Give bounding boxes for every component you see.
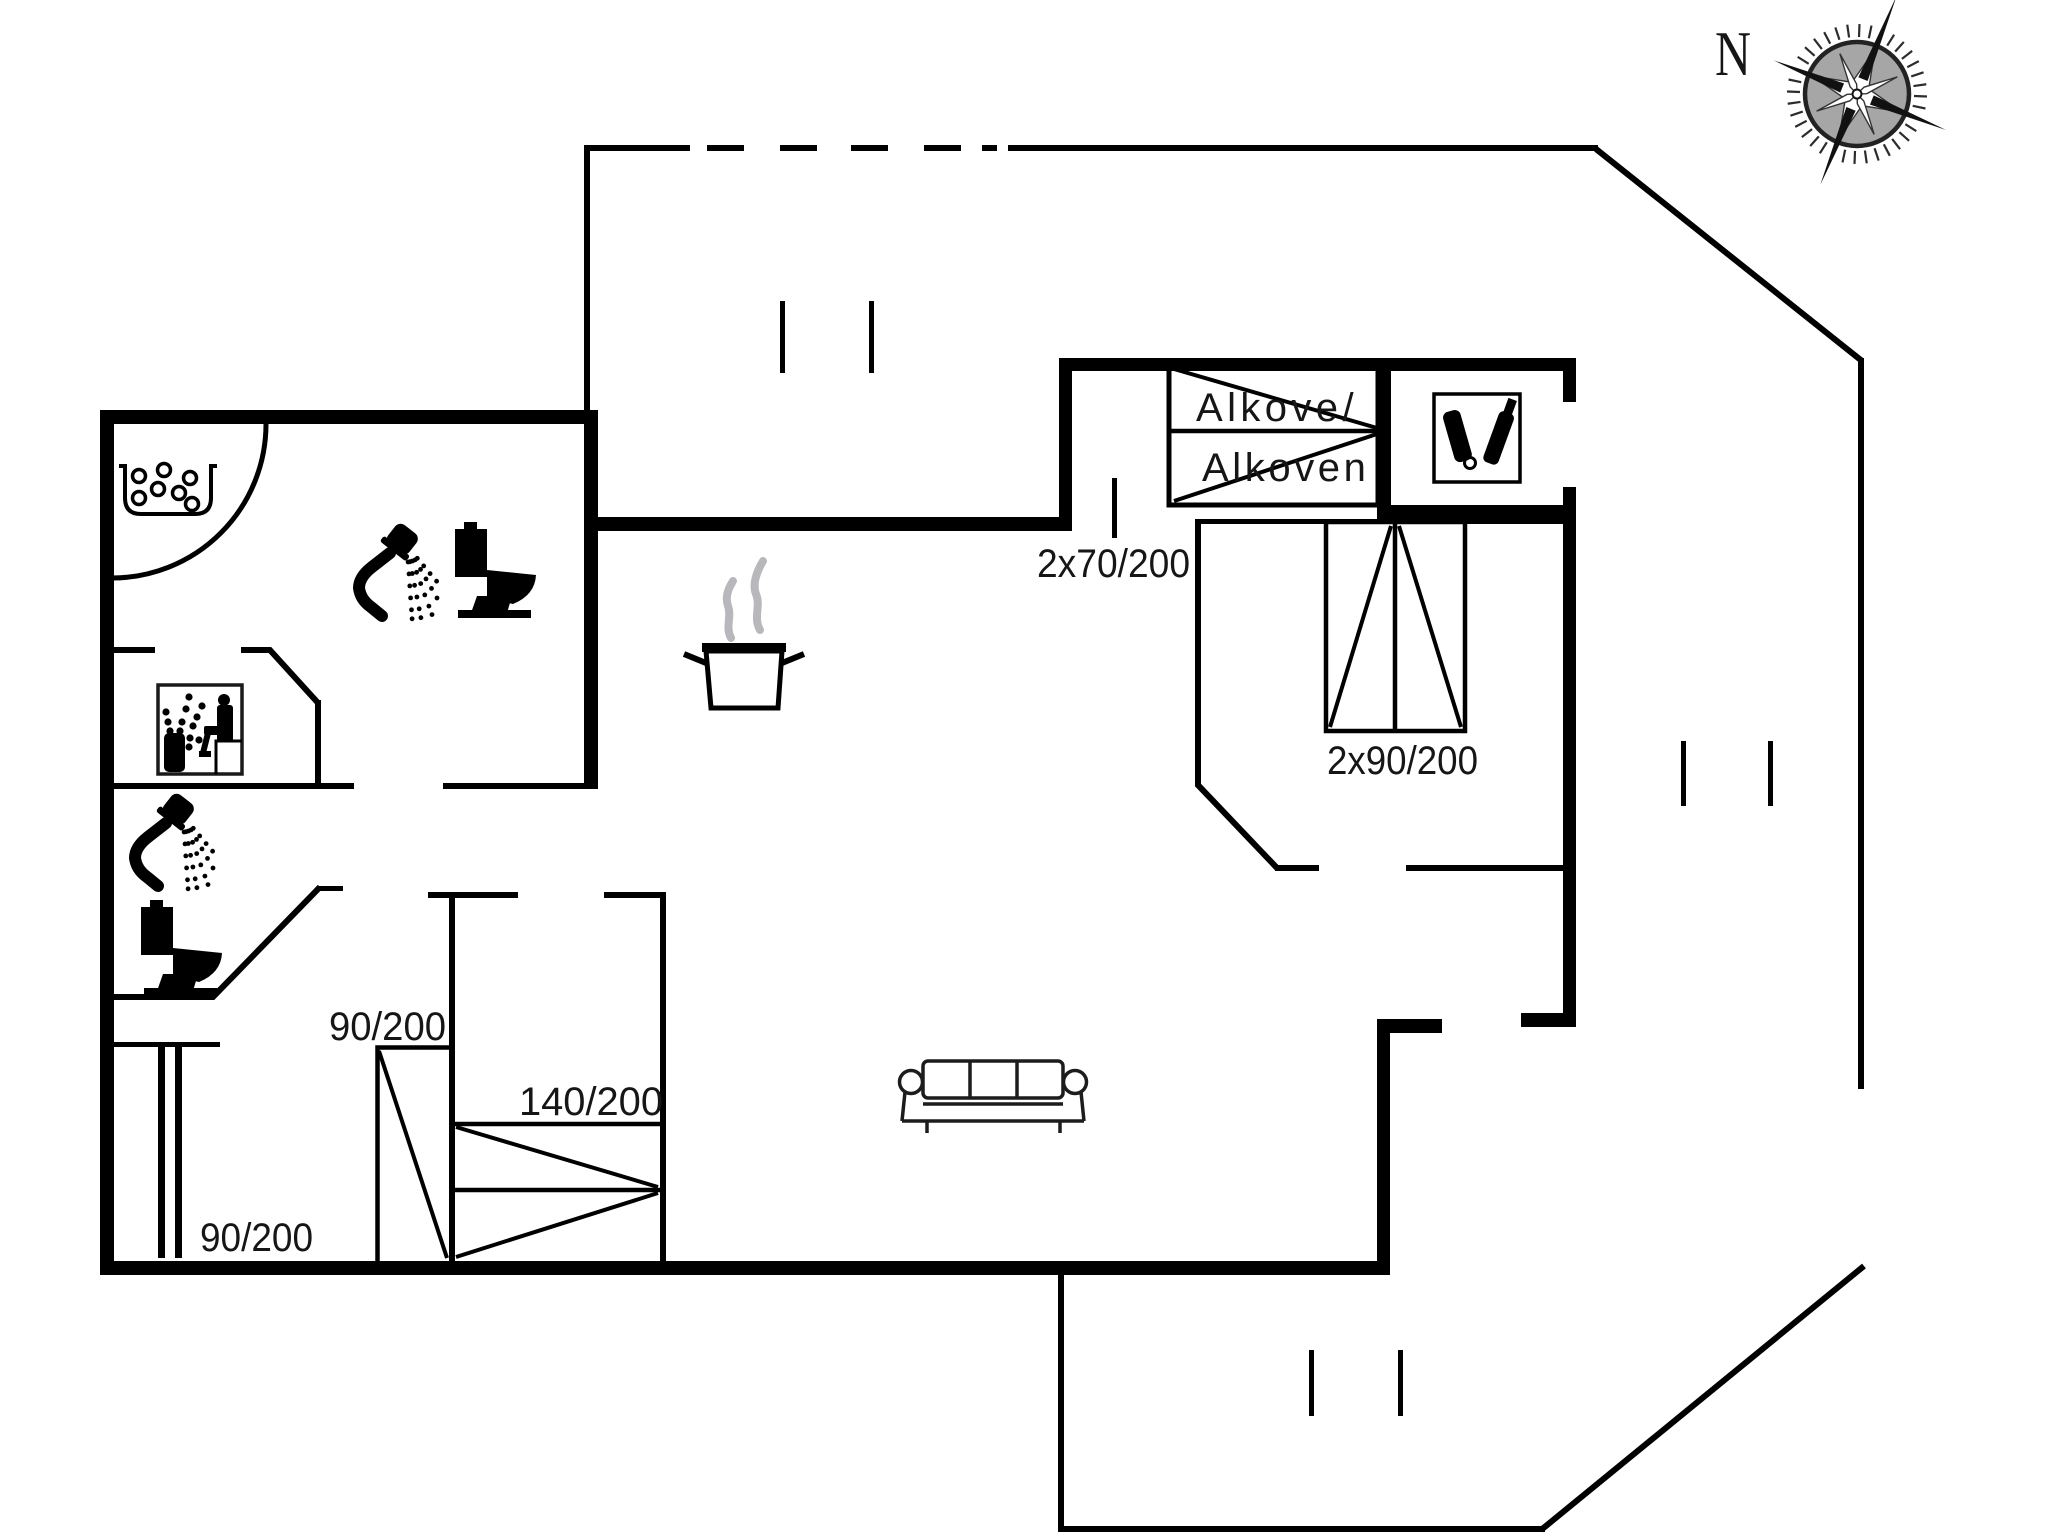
svg-text:2x70/200: 2x70/200 [1037, 542, 1190, 586]
svg-text:2x90/200: 2x90/200 [1327, 739, 1478, 783]
svg-text:140/200: 140/200 [519, 1080, 663, 1124]
svg-text:90/200: 90/200 [200, 1216, 313, 1260]
svg-text:Alkoven: Alkoven [1202, 446, 1370, 490]
svg-text:90/200: 90/200 [329, 1005, 446, 1049]
svg-text:N: N [1715, 18, 1751, 89]
svg-text:Alkove/: Alkove/ [1196, 386, 1358, 430]
